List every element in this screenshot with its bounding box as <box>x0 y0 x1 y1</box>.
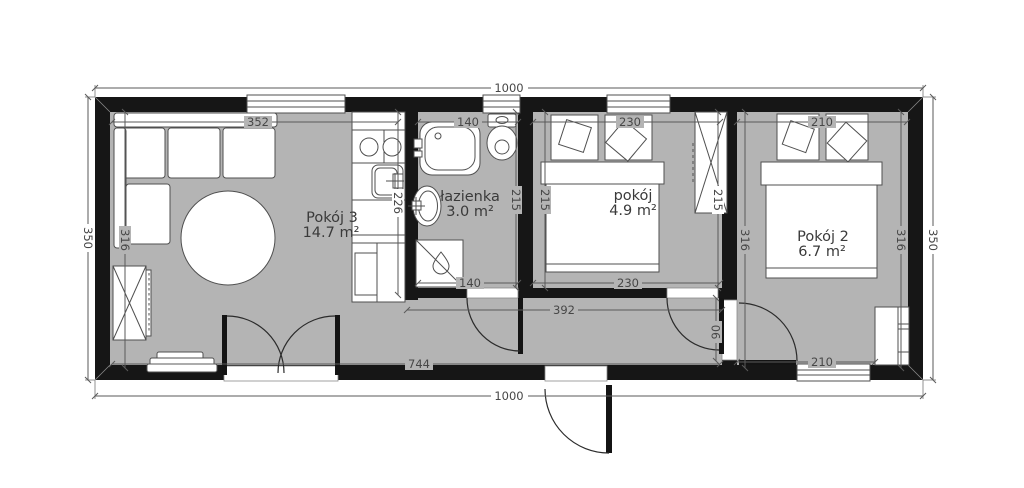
room-label-bedroom2: Pokój 2 <box>797 229 849 245</box>
svg-text:215: 215 <box>711 189 725 211</box>
round-table-icon <box>181 191 275 285</box>
dim-hall-length: 744 <box>405 357 433 371</box>
dim-wardrobe-height: 215 <box>711 186 725 214</box>
dim-overall-width-top: 1000 <box>491 81 528 95</box>
room-label-bedroom1: pokój <box>614 188 653 204</box>
svg-text:230: 230 <box>617 276 639 290</box>
dim-bath-bottom: 140 <box>456 276 484 290</box>
svg-text:392: 392 <box>553 303 575 317</box>
dim-living-height: 316 <box>118 226 132 254</box>
dim-bath-height: 215 <box>509 186 523 214</box>
dim-bedroom1-top: 230 <box>616 115 644 129</box>
room-area-bath: 3.0 m² <box>446 204 494 220</box>
dim-kitchen-length: 226 <box>391 189 405 217</box>
dim-bedroom2-height-left: 316 <box>738 226 752 254</box>
dim-bedroom1-bottom: 230 <box>614 276 642 290</box>
svg-text:316: 316 <box>738 229 752 251</box>
svg-text:140: 140 <box>459 276 481 290</box>
floor-plan-page: 1000 352 140 230 210 350 316 226 <box>0 0 1024 488</box>
bathtub-icon <box>414 122 480 175</box>
room-label-bath: łazienka <box>440 189 500 205</box>
room-label-living: Pokój 3 <box>306 210 358 226</box>
window-bedroom1 <box>607 95 670 113</box>
svg-text:226: 226 <box>391 192 405 214</box>
window-living <box>247 95 345 113</box>
wall-hall-a <box>405 288 467 298</box>
svg-text:210: 210 <box>811 115 833 129</box>
svg-text:350: 350 <box>81 227 95 249</box>
svg-text:215: 215 <box>509 189 523 211</box>
dim-overall-width-bottom: 1000 <box>491 389 528 403</box>
wall-hall-c <box>718 288 737 298</box>
dim-bedroom2-height-right: 316 <box>894 226 908 254</box>
toilet-icon <box>487 114 517 160</box>
dim-bedroom2-bottom: 210 <box>808 355 836 369</box>
svg-text:1000: 1000 <box>494 81 523 95</box>
svg-text:90: 90 <box>709 325 723 340</box>
svg-text:352: 352 <box>247 115 269 129</box>
hob-burner-icon <box>360 138 378 156</box>
svg-text:350: 350 <box>926 229 940 251</box>
window-bath <box>483 95 520 113</box>
dim-living-window-top: 352 <box>244 115 272 129</box>
wall-bedroom2-left-lower <box>722 360 737 366</box>
room-area-living: 14.7 m² <box>303 225 360 241</box>
dim-door-opening: 90 <box>709 321 723 343</box>
floor-plan-drawing: 1000 352 140 230 210 350 316 226 <box>0 0 1024 488</box>
dim-overall-height-left: 350 <box>81 224 95 252</box>
svg-text:316: 316 <box>894 229 908 251</box>
entrance-door-opening <box>545 366 607 381</box>
svg-text:1000: 1000 <box>494 389 523 403</box>
dim-bedroom1-height: 215 <box>538 186 552 214</box>
room-area-bedroom2: 6.7 m² <box>798 244 846 260</box>
room-area-bedroom1: 4.9 m² <box>609 203 657 219</box>
svg-text:230: 230 <box>619 115 641 129</box>
svg-text:744: 744 <box>408 357 430 371</box>
dim-hall-width: 392 <box>550 303 578 317</box>
svg-text:215: 215 <box>538 189 552 211</box>
patio-door-opening <box>224 366 338 381</box>
dim-overall-height-right: 350 <box>926 226 940 254</box>
dim-bedroom2-top: 210 <box>808 115 836 129</box>
wardrobe-icon <box>113 266 151 340</box>
svg-text:316: 316 <box>118 229 132 251</box>
dim-bath-top: 140 <box>454 115 482 129</box>
dresser-icon <box>875 307 909 365</box>
svg-text:140: 140 <box>457 115 479 129</box>
wall-hall-b <box>518 288 667 298</box>
entrance-door <box>545 385 612 453</box>
shower-icon <box>416 240 463 287</box>
bedroom2-door-opening <box>722 300 737 360</box>
svg-text:210: 210 <box>811 355 833 369</box>
bedroom1-door-opening <box>667 288 718 298</box>
